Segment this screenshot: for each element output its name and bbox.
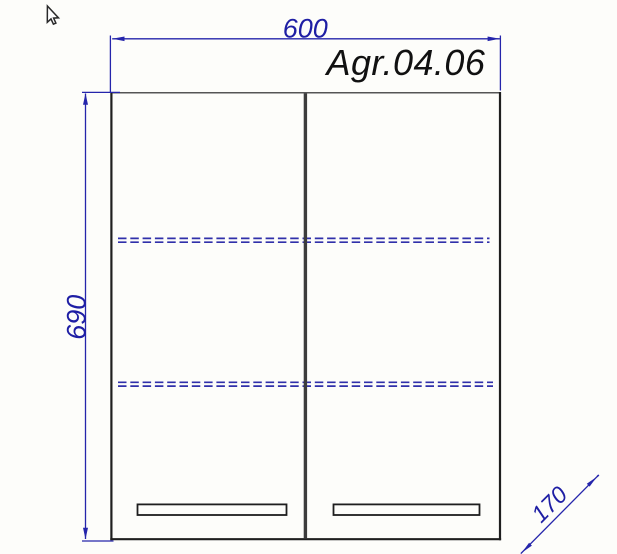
- svg-text:690: 690: [62, 295, 92, 340]
- svg-text:Agr.04.06: Agr.04.06: [325, 42, 486, 83]
- svg-text:600: 600: [283, 13, 328, 43]
